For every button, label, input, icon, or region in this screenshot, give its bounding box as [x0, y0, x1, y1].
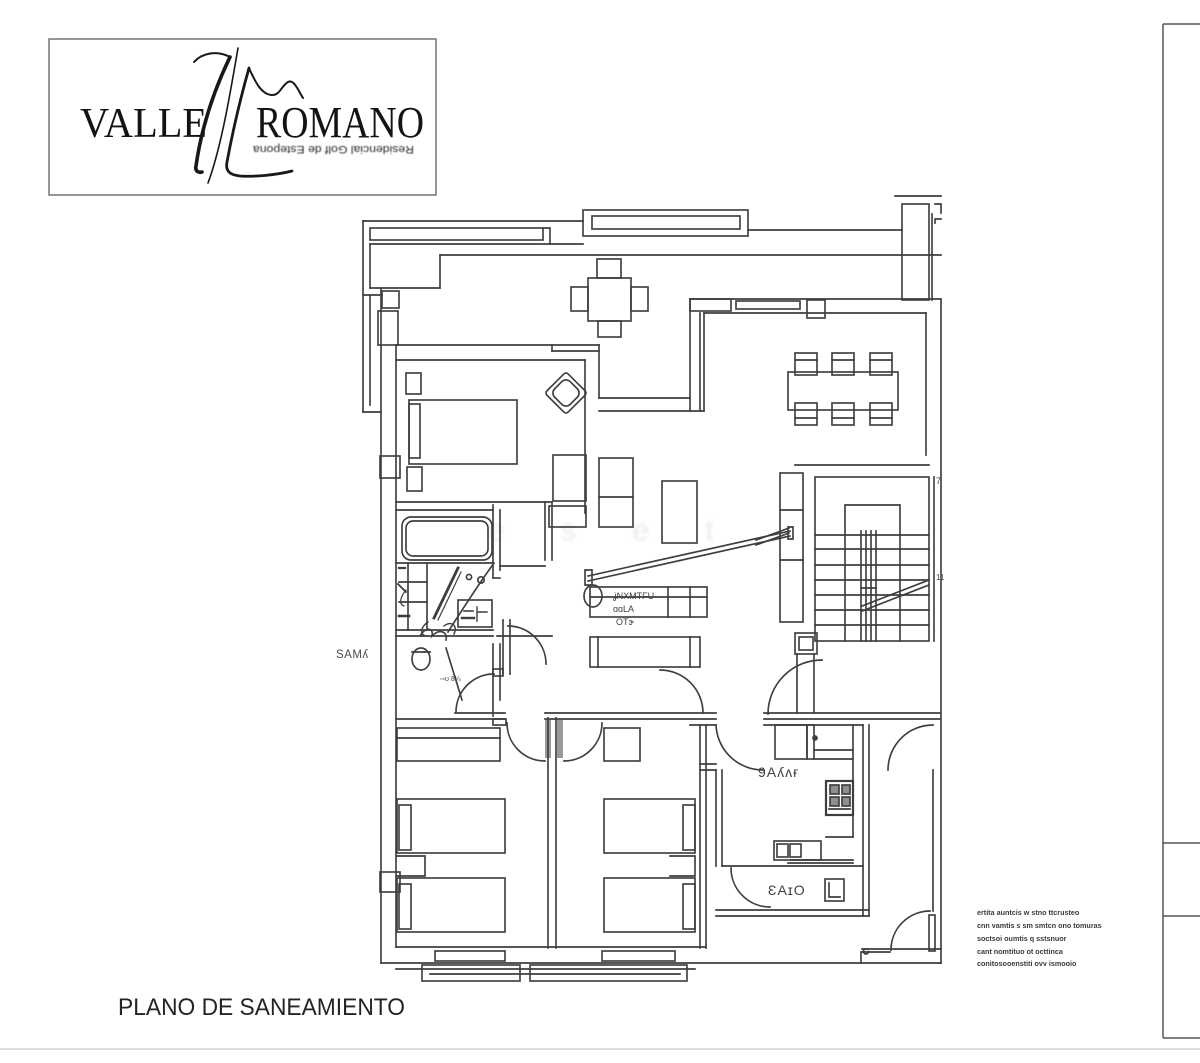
svg-text:OTɝ: OTɝ [616, 617, 634, 627]
svg-text:SAMʎ: SAMʎ [336, 649, 369, 661]
svg-text:PLANO DE SANEAMIENTO: PLANO DE SANEAMIENTO [118, 994, 405, 1021]
svg-text:ʝNXMTFU: ʝNXMTFU [613, 591, 654, 601]
svg-text:7: 7 [936, 476, 941, 486]
svg-text:conitosooenstiti ovv ismooio: conitosooenstiti ovv ismooio [977, 959, 1077, 968]
svg-text:9Aʎʌғ: 9Aʎʌғ [758, 764, 799, 780]
svg-text:VALLE: VALLE [80, 101, 207, 147]
svg-text:ertita auntcis w stno ttcruste: ertita auntcis w stno ttcrusteo [977, 908, 1080, 917]
svg-text:soctsoi oumtis q sstsnuor: soctsoi oumtis q sstsnuor [977, 934, 1067, 943]
svg-text:ROMANO: ROMANO [256, 98, 424, 147]
svg-text:Residencial Golf de Estepona: Residencial Golf de Estepona [252, 143, 414, 155]
svg-text:ƐAɪO: ƐAɪO [768, 882, 806, 898]
svg-text:11: 11 [936, 573, 945, 582]
svg-text:ɑɑLA: ɑɑLA [613, 604, 634, 614]
svg-text:cant nomtituo ot octtinca: cant nomtituo ot octtinca [977, 947, 1064, 956]
svg-text:cnn vamtis s sm smtcn ono to: cnn vamtis s sm smtcn ono tomuras [977, 921, 1102, 930]
svg-text:▫▫ʊ 8¼: ▫▫ʊ 8¼ [440, 676, 461, 683]
svg-text:e s e t: e s e t [488, 514, 738, 547]
